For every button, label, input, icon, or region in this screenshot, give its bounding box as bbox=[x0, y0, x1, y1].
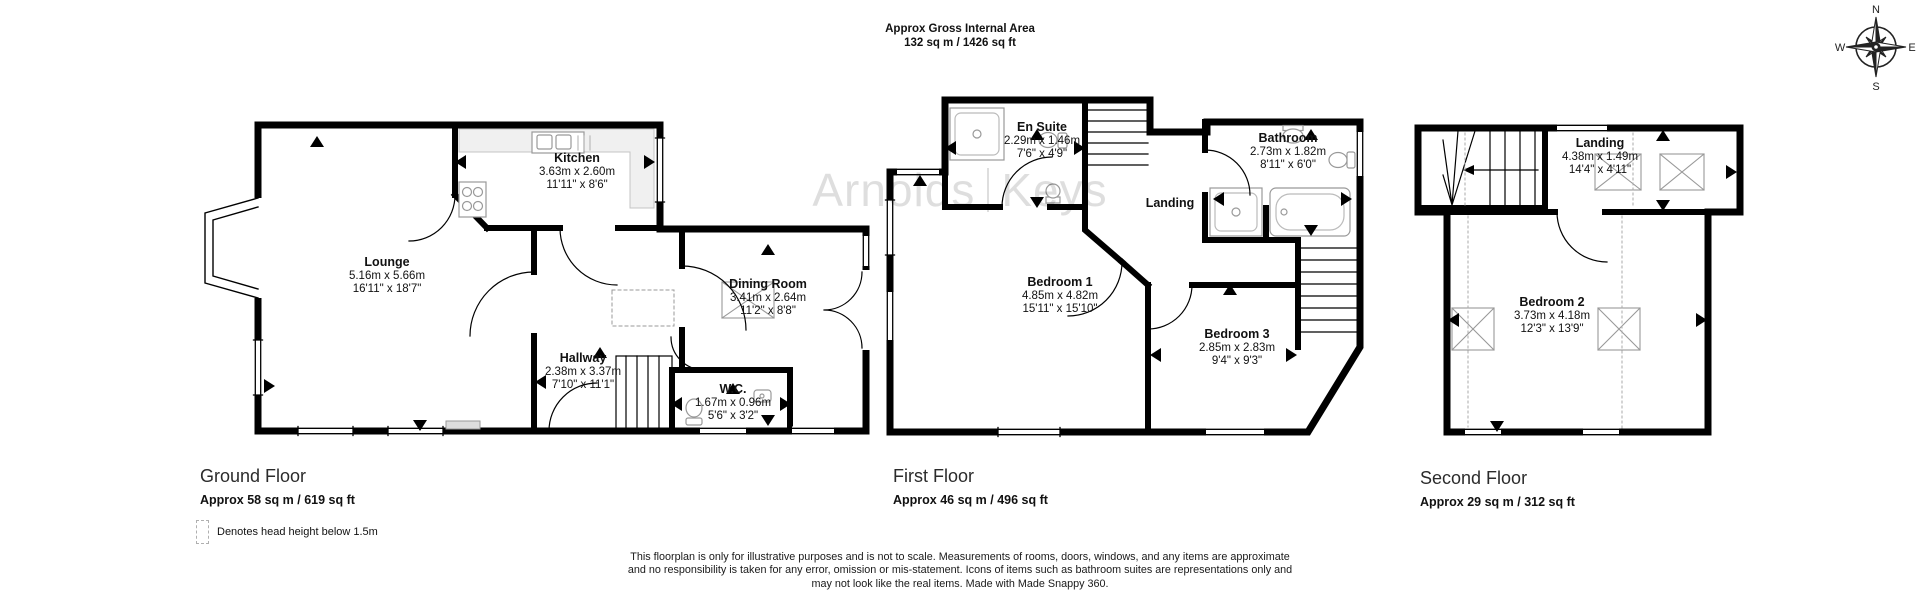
disclaimer-line3: may not look like the real items. Made w… bbox=[0, 578, 1920, 591]
room-name: Bedroom 3 bbox=[1152, 328, 1322, 342]
head-height-legend-label: Denotes head height below 1.5m bbox=[217, 526, 378, 538]
floor-name: Second Floor bbox=[1420, 468, 1575, 489]
room-label-bedroom-1: Bedroom 1 4.85m x 4.82m 15'11" x 15'10" bbox=[975, 276, 1145, 317]
room-name: Bedroom 1 bbox=[975, 276, 1145, 290]
room-label-dining-room: Dining Room 3.41m x 2.64m 11'2" x 8'8" bbox=[683, 278, 853, 319]
kitchen-sink-icon bbox=[532, 132, 590, 153]
room-dim-metric: 2.29m x 1.46m bbox=[957, 135, 1127, 149]
room-name: Kitchen bbox=[492, 152, 662, 166]
disclaimer-line1: This floorplan is only for illustrative … bbox=[0, 551, 1920, 564]
ground-floor-title: Ground Floor Approx 58 sq m / 619 sq ft bbox=[200, 466, 355, 507]
floor-name: First Floor bbox=[893, 466, 1048, 487]
room-name: Bathroom bbox=[1203, 132, 1373, 146]
room-name: Bedroom 2 bbox=[1467, 296, 1637, 310]
compass-rose: N E S W bbox=[1835, 4, 1916, 93]
room-dim-metric: 4.85m x 4.82m bbox=[975, 290, 1145, 304]
bathroom-shower-icon bbox=[1210, 188, 1262, 236]
room-dim-metric: 3.41m x 2.64m bbox=[683, 292, 853, 306]
disclaimer-line2: and no responsibility is taken for any e… bbox=[0, 564, 1920, 577]
room-dim-imperial: 14'4" x 4'11" bbox=[1515, 164, 1685, 178]
room-label-landing-second: Landing 4.38m x 1.49m 14'4" x 4'11" bbox=[1515, 137, 1685, 178]
bay-window bbox=[253, 198, 263, 298]
room-name: Lounge bbox=[302, 256, 472, 270]
compass-n-label: N bbox=[1872, 4, 1880, 16]
room-dim-imperial: 11'11" x 8'6" bbox=[492, 179, 662, 193]
room-dim-metric: 5.16m x 5.66m bbox=[302, 270, 472, 284]
room-label-hallway: Hallway 2.38m x 3.37m 7'10" x 11'1" bbox=[498, 352, 668, 393]
room-label-kitchen: Kitchen 3.63m x 2.60m 11'11" x 8'6" bbox=[492, 152, 662, 193]
room-dim-metric: 3.63m x 2.60m bbox=[492, 166, 662, 180]
room-label-lounge: Lounge 5.16m x 5.66m 16'11" x 18'7" bbox=[302, 256, 472, 297]
room-dim-imperial: 8'11" x 6'0" bbox=[1203, 159, 1373, 173]
room-dim-imperial: 7'6" x 4'9" bbox=[957, 148, 1127, 162]
room-label-en-suite: En Suite 2.29m x 1.46m 7'6" x 4'9" bbox=[957, 121, 1127, 162]
floor-name: Ground Floor bbox=[200, 466, 355, 487]
room-dim-imperial: 16'11" x 18'7" bbox=[302, 283, 472, 297]
floor-area: Approx 29 sq m / 312 sq ft bbox=[1420, 495, 1575, 509]
room-label-bathroom: Bathroom 2.73m x 1.82m 8'11" x 6'0" bbox=[1203, 132, 1373, 173]
room-dim-imperial: 15'11" x 15'10" bbox=[975, 303, 1145, 317]
second-floor-title: Second Floor Approx 29 sq m / 312 sq ft bbox=[1420, 468, 1575, 509]
floor-area: Approx 46 sq m / 496 sq ft bbox=[893, 493, 1048, 507]
hob-icon bbox=[459, 182, 486, 217]
room-label-bedroom-2: Bedroom 2 3.73m x 4.18m 12'3" x 13'9" bbox=[1467, 296, 1637, 337]
room-dim-imperial: 7'10" x 11'1" bbox=[498, 379, 668, 393]
room-name: En Suite bbox=[957, 121, 1127, 135]
room-name: Dining Room bbox=[683, 278, 853, 292]
room-dim-metric: 4.38m x 1.49m bbox=[1515, 151, 1685, 165]
room-dim-metric: 2.38m x 3.37m bbox=[498, 366, 668, 380]
room-dim-imperial: 11'2" x 8'8" bbox=[683, 305, 853, 319]
room-name: W.C. bbox=[648, 383, 818, 397]
room-name: Landing bbox=[1515, 137, 1685, 151]
compass-e-label: E bbox=[1908, 42, 1915, 54]
compass-s-label: S bbox=[1872, 81, 1879, 93]
room-dim-metric: 1.67m x 0.96m bbox=[648, 397, 818, 411]
room-name: Hallway bbox=[498, 352, 668, 366]
room-dim-imperial: 12'3" x 13'9" bbox=[1467, 323, 1637, 337]
room-label-landing-first: Landing bbox=[1095, 197, 1245, 211]
first-floor-title: First Floor Approx 46 sq m / 496 sq ft bbox=[893, 466, 1048, 507]
basin-icon bbox=[1046, 184, 1060, 203]
disclaimer: This floorplan is only for illustrative … bbox=[0, 551, 1920, 591]
room-dim-metric: 3.73m x 4.18m bbox=[1467, 310, 1637, 324]
room-dim-metric: 2.73m x 1.82m bbox=[1203, 146, 1373, 160]
room-name: Landing bbox=[1095, 197, 1245, 211]
fireplace-icon bbox=[446, 421, 480, 429]
floor-area: Approx 58 sq m / 619 sq ft bbox=[200, 493, 355, 507]
compass-w-label: W bbox=[1835, 42, 1846, 54]
room-label-wc: W.C. 1.67m x 0.96m 5'6" x 3'2" bbox=[648, 383, 818, 424]
head-height-legend-icon bbox=[196, 520, 209, 544]
room-label-bedroom-3: Bedroom 3 2.85m x 2.83m 9'4" x 9'3" bbox=[1152, 328, 1322, 369]
room-dim-metric: 2.85m x 2.83m bbox=[1152, 342, 1322, 356]
room-dim-imperial: 9'4" x 9'3" bbox=[1152, 355, 1322, 369]
room-dim-imperial: 5'6" x 3'2" bbox=[648, 410, 818, 424]
